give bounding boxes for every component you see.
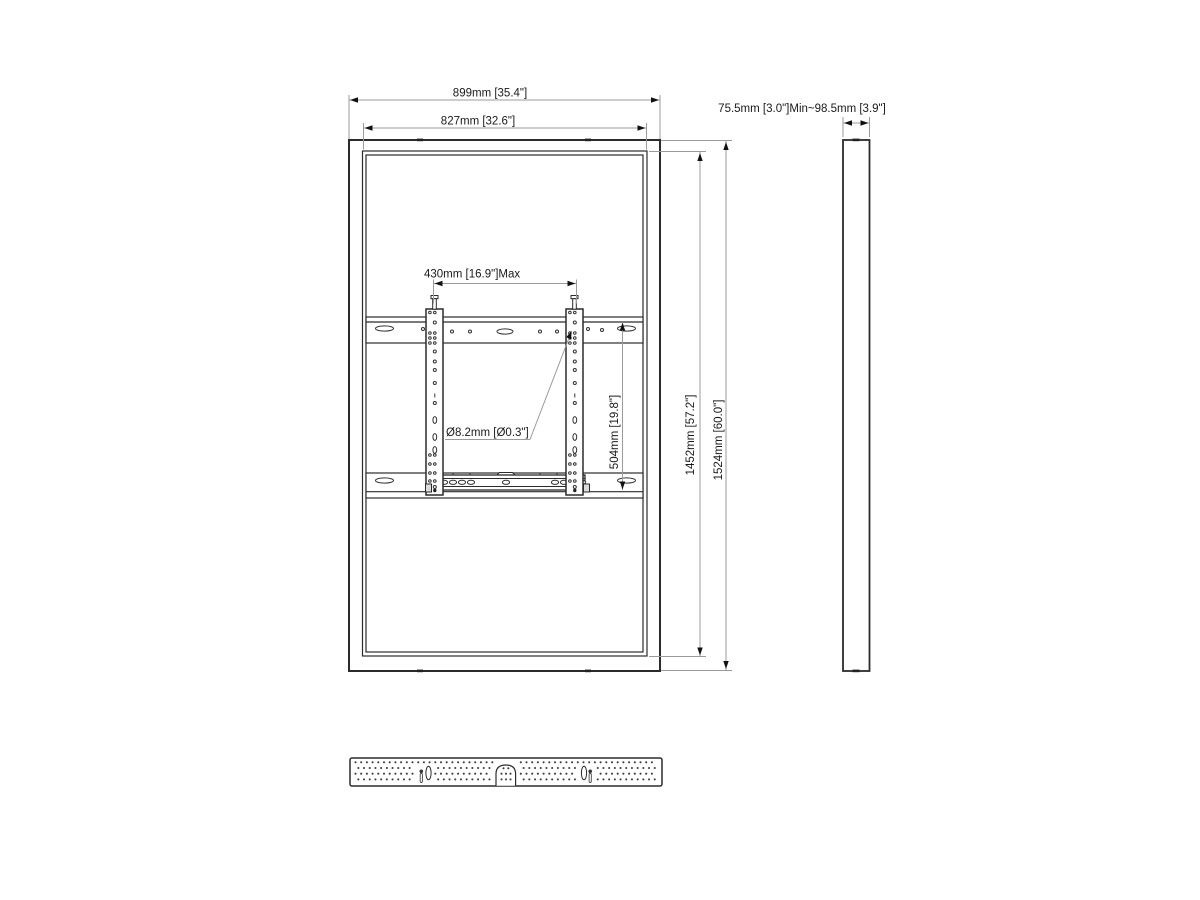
right-screw xyxy=(588,770,592,774)
label-bracket-height: 504mm [19.8"] xyxy=(609,395,621,469)
right-slot xyxy=(581,766,586,780)
enclosure-bezel-outer xyxy=(363,151,648,656)
label-inner-height: 1452mm [57.2"] xyxy=(685,395,697,476)
label-outer-height: 1524mm [60.0"] xyxy=(713,400,725,481)
dim-bracket-width xyxy=(434,280,577,304)
left-rail-screw xyxy=(431,296,438,310)
label-inner-width: 827mm [32.6"] xyxy=(441,116,515,128)
right-rail-foot xyxy=(584,484,590,492)
dim-depth xyxy=(843,117,870,137)
left-rail-foot xyxy=(426,484,432,492)
side-view-enclosure xyxy=(843,140,870,671)
label-outer-width: 899mm [35.4"] xyxy=(453,88,527,100)
cable-arch-cutout xyxy=(496,765,516,786)
label-hole-diameter: Ø8.2mm [Ø0.3"] xyxy=(446,427,529,439)
side-view-ticks xyxy=(853,139,860,673)
left-screw xyxy=(420,770,424,774)
left-slot xyxy=(426,766,431,780)
drawing-sheet: 899mm [35.4"] 827mm [32.6"] 75.5mm [3.0"… xyxy=(0,0,1200,900)
mounting-rails xyxy=(366,317,643,498)
bottom-view-strip xyxy=(350,758,662,786)
enclosure-bezel-inner xyxy=(366,155,643,652)
label-depth-range: 75.5mm [3.0"]Min~98.5mm [3.9"] xyxy=(718,103,886,115)
technical-drawing: 899mm [35.4"] 827mm [32.6"] 75.5mm [3.0"… xyxy=(0,0,1200,900)
hole-diameter-leader xyxy=(445,332,572,440)
label-bracket-width: 430mm [16.9"]Max xyxy=(424,269,520,281)
